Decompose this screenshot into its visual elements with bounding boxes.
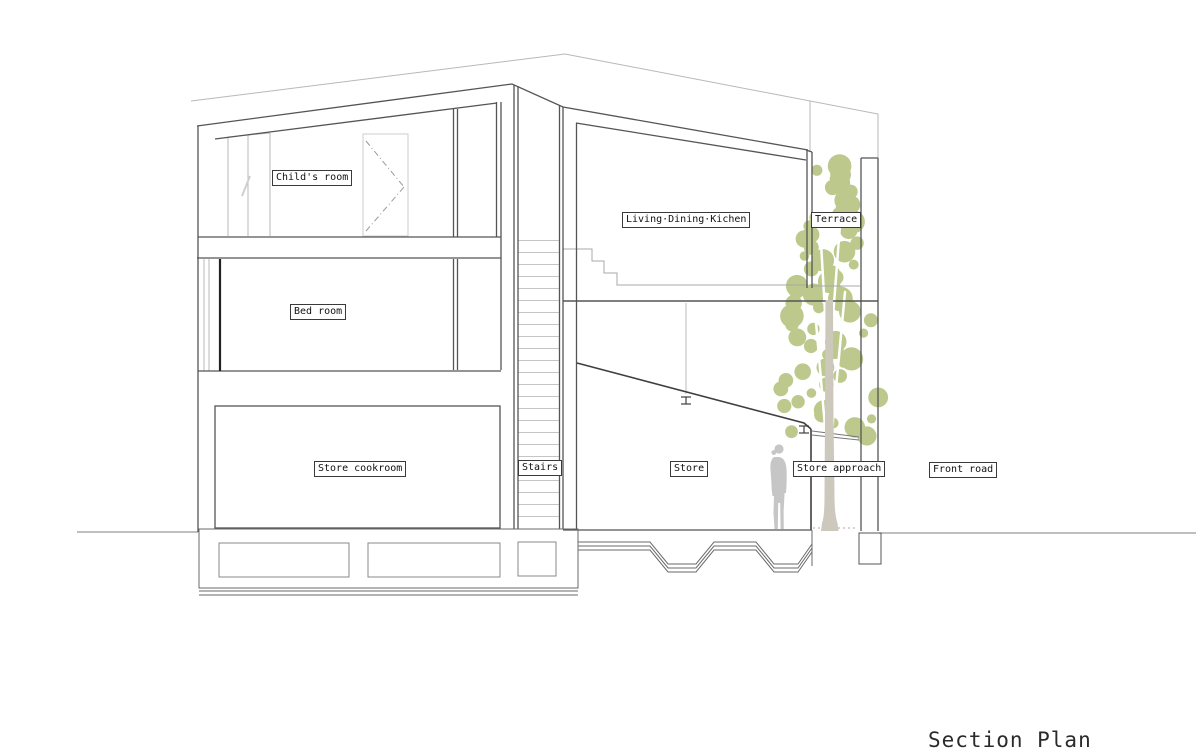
label-store-cookroom: Store cookroom (314, 461, 406, 477)
person-figure (770, 444, 786, 529)
label-store-approach: Store approach (793, 461, 885, 477)
stairs-treads (518, 240, 560, 528)
section-plan-page: Child's room Bed room Store cookroom Sta… (0, 0, 1200, 756)
ground-line (77, 532, 1196, 533)
section-drawing (0, 0, 1200, 756)
label-stairs: Stairs (518, 460, 562, 476)
foundation (199, 529, 881, 595)
label-childs-room: Child's room (272, 170, 352, 186)
label-bed-room: Bed room (290, 304, 346, 320)
label-front-road: Front road (929, 462, 997, 478)
label-terrace: Terrace (811, 212, 861, 228)
page-title: Section Plan (928, 728, 1092, 752)
label-living-dining-kitchen: Living·Dining·Kichen (622, 212, 750, 228)
label-store: Store (670, 461, 708, 477)
roof-line (197, 84, 808, 150)
